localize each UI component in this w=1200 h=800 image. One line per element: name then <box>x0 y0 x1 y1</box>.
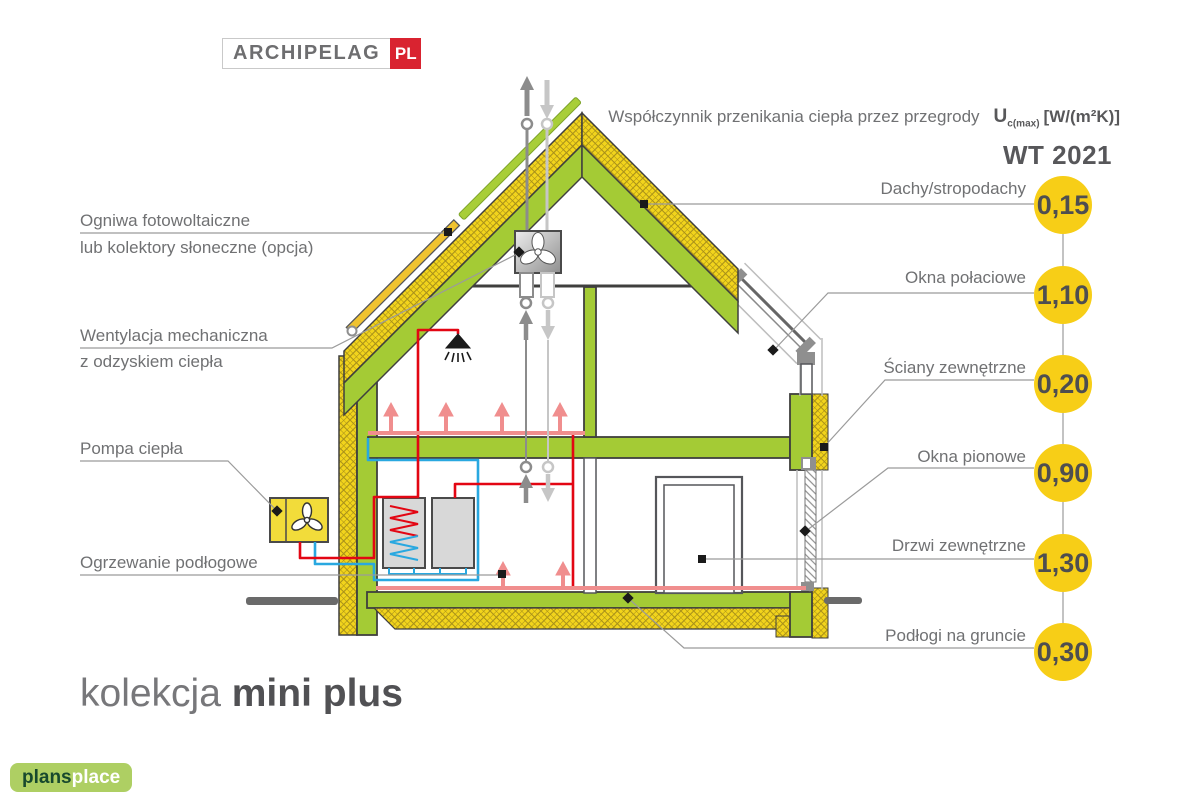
roof-insulation-right <box>582 113 738 301</box>
u-subscript: c(max) <box>1007 118 1039 129</box>
label-ventilation-line2: z odzyskiem ciepła <box>80 352 223 372</box>
label-photovoltaics-line2: lub kolektory słoneczne (opcja) <box>80 238 313 258</box>
value-badge-ground-floors: 0,30 <box>1034 623 1092 681</box>
roof-right <box>582 145 738 333</box>
terrain-left <box>246 597 338 605</box>
collection-name: mini plus <box>232 672 403 715</box>
plansplace-logo-bold: plans <box>22 767 72 789</box>
vertical-window <box>797 457 822 591</box>
plansplace-logo: plansplace <box>10 763 132 792</box>
value-badge-roof-windows: 1,10 <box>1034 266 1092 324</box>
label-vertical-windows: Okna pionowe <box>917 447 1026 467</box>
heat-pump-indoor-unit <box>432 498 474 568</box>
archipelag-logo-pl: PL <box>390 38 421 69</box>
collection-title: kolekcja mini plus <box>80 672 403 716</box>
label-external-doors: Drzwi zewnętrzne <box>892 536 1026 556</box>
u-symbol: U <box>994 106 1008 127</box>
archipelag-logo-text: ARCHIPELAG <box>222 38 390 69</box>
terrain-right <box>824 597 862 604</box>
right-foundation <box>790 592 812 637</box>
ground-slab <box>367 592 808 608</box>
header-title: Współczynnik przenikania ciepła przez pr… <box>608 107 979 126</box>
label-roofs: Dachy/stropodachy <box>880 179 1026 199</box>
header-title-row: Współczynnik przenikania ciepła przez pr… <box>608 106 1120 129</box>
archipelag-logo: ARCHIPELAG PL <box>222 38 421 69</box>
under-slab-insulation <box>374 608 790 629</box>
label-external-walls: Ściany zewnętrzne <box>883 358 1026 378</box>
label-roof-windows: Okna połaciowe <box>905 268 1026 288</box>
infographic-page: { "brand": { "archipelag": "ARCHIPELAG",… <box>0 0 1200 800</box>
attic-slab <box>368 437 790 458</box>
attic-partition-wall <box>584 287 596 437</box>
walls-and-slabs <box>246 286 862 638</box>
label-floor-heating: Ogrzewanie podłogowe <box>80 553 258 573</box>
label-ventilation-line1: Wentylacja mechaniczna <box>80 326 268 346</box>
exterior-door <box>656 477 742 593</box>
plansplace-logo-light: place <box>72 767 121 789</box>
u-units: [W/(m²K)] <box>1044 107 1120 126</box>
value-badge-roofs: 0,15 <box>1034 176 1092 234</box>
intake-arrow-down <box>540 105 554 119</box>
label-heat-pump: Pompa ciepła <box>80 439 183 459</box>
value-badge-external-walls: 0,20 <box>1034 355 1092 413</box>
value-badge-vertical-windows: 0,90 <box>1034 444 1092 502</box>
standard-label: WT 2021 <box>1003 140 1112 171</box>
hot-water-tank <box>383 498 425 568</box>
heat-pump-unit <box>270 498 328 542</box>
label-ground-floors: Podłogi na gruncie <box>885 626 1026 646</box>
label-photovoltaics-line1: Ogniwa fotowoltaiczne <box>80 211 250 231</box>
exhaust-arrow-up <box>520 76 534 90</box>
collection-prefix: kolekcja <box>80 672 232 715</box>
value-badge-external-doors: 1,30 <box>1034 534 1092 592</box>
shower-icon <box>445 334 471 362</box>
ground-partition-wall <box>584 458 596 593</box>
